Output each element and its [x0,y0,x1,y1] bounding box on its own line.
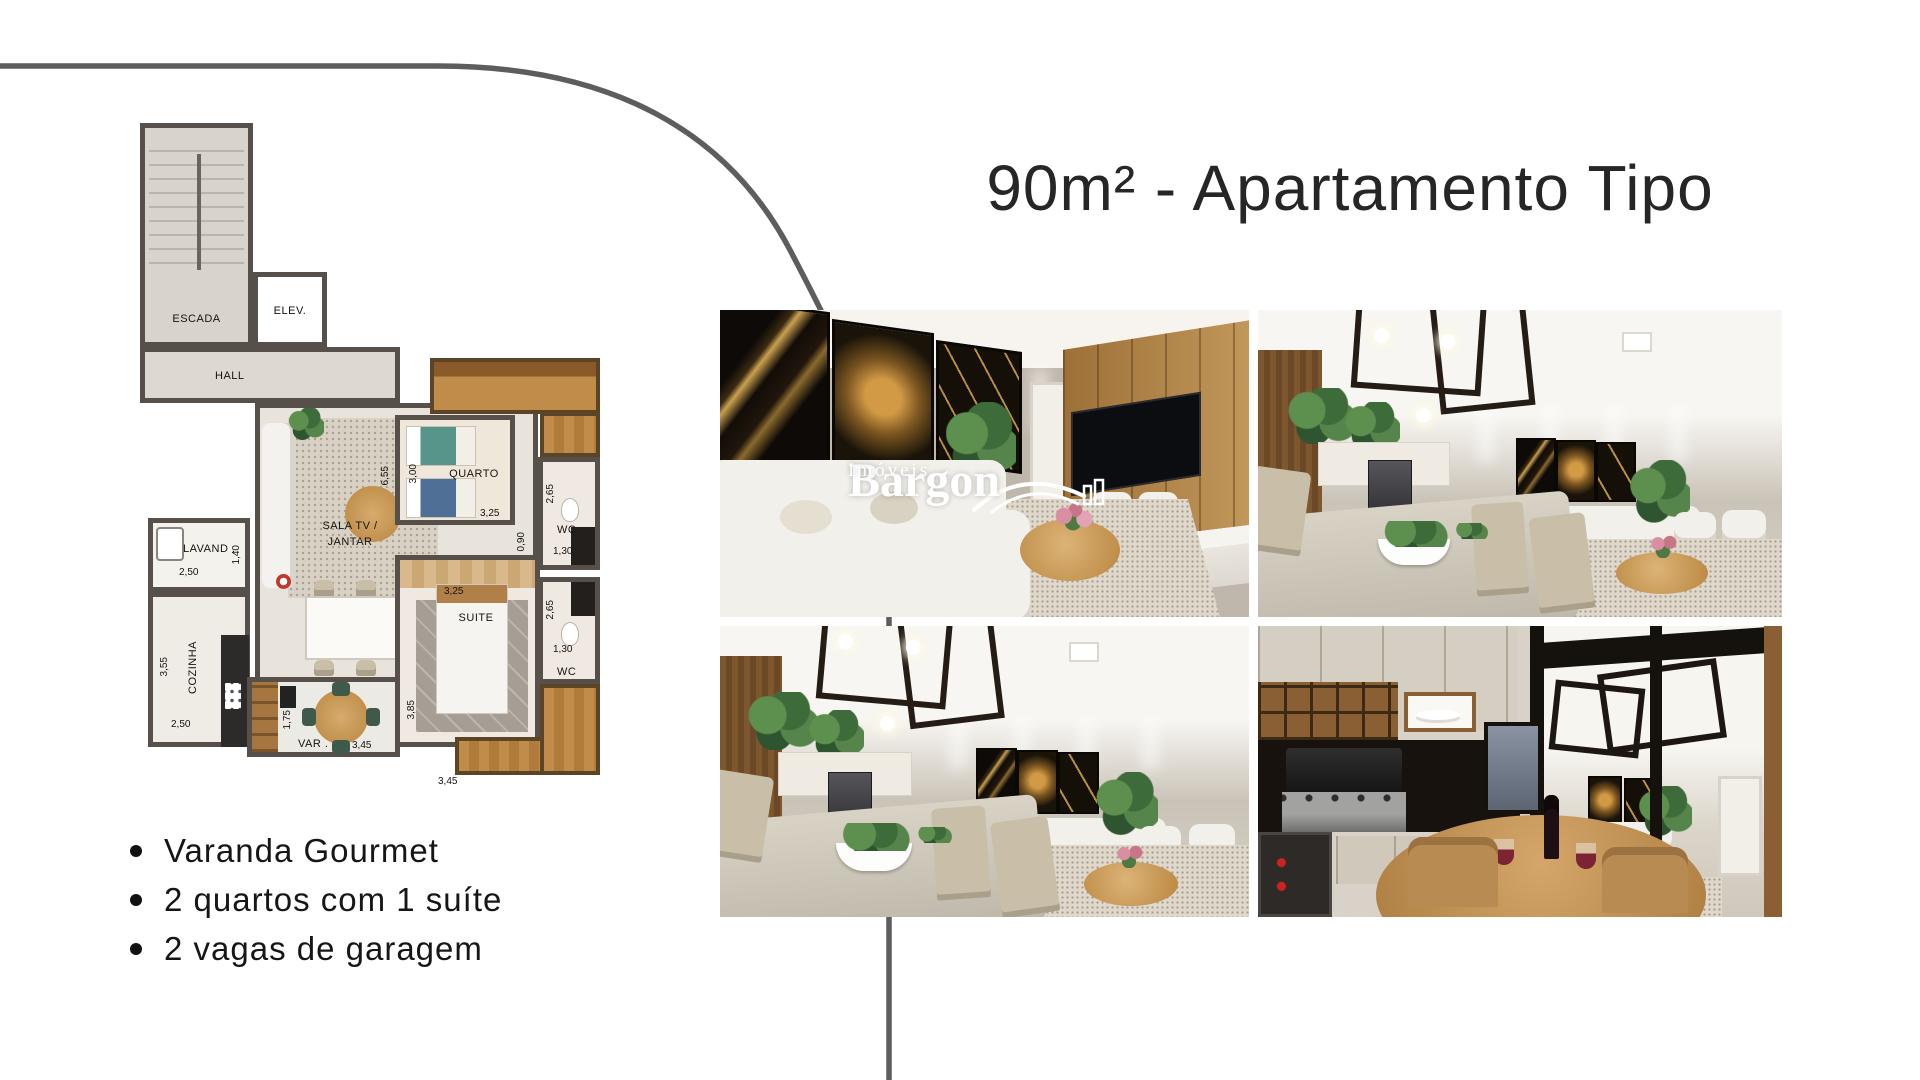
dim-varanda-height: 1,75 [282,710,293,729]
watermark-subtitle: Imóveis [848,460,936,482]
feature-item: Varanda Gourmet [130,826,502,875]
hall-room: HALL [140,347,400,403]
room-label-lavand: LAVAND . [183,543,236,555]
varanda-cabinet [252,682,278,752]
varanda-chair [332,740,350,754]
feature-item: 2 vagas de garagem [130,924,502,973]
floor-plan: ESCADA ELEV. HALL SALA TV / JANTAR 6,55 … [138,118,603,780]
dining-chair-plan [356,660,376,676]
plant-plan [288,408,324,440]
bed-blue-plan [406,478,476,518]
photo-grid: Bargon Imóveis [720,310,1782,917]
oval-coffee-table [1616,552,1708,594]
balcony-deck-top [430,358,600,414]
coffee-table-plan [345,486,401,542]
dim-corridor: 0,90 [516,532,527,551]
salad-greens [916,827,952,843]
plant [1638,786,1692,836]
salad-greens [1380,521,1448,547]
photo-dining-living-alt [720,626,1249,917]
dining-chair-plan [314,580,334,596]
room-label-hall: HALL [215,370,245,382]
room-label-suite: SUITE [436,612,516,624]
salad-greens [1454,523,1488,539]
window-sky [1484,722,1542,814]
washer-icon [156,527,184,561]
feature-label: 2 vagas de garagem [164,930,483,968]
varanda-room: 1,75 VAR . 3,45 [247,677,400,757]
wc-bottom-counter [571,582,595,616]
photo-varanda-gourmet [1258,626,1782,917]
dining-table-plan [305,596,397,660]
ceiling-fixture [1069,642,1099,662]
balcony-deck-right [540,412,600,457]
varanda-grill [280,686,296,708]
wine-glass [1576,843,1596,869]
side-table-plan [276,574,291,589]
varanda-chair [302,708,316,726]
pendant-globe [1416,408,1431,423]
oval-coffee-table [1084,862,1178,906]
pendant-globe [880,716,895,731]
stair-rail [197,154,201,270]
beverage-fridge [1258,832,1332,917]
dim-cozinha-width: 2,50 [171,719,190,730]
dining-chair-plan [356,580,376,596]
wood-edge [1764,626,1782,917]
room-label-escada: ESCADA [145,313,248,325]
sofa-plan [262,423,296,588]
feature-label: Varanda Gourmet [164,832,439,870]
wc-bottom-toilet [561,622,579,646]
grill-hood [1286,748,1402,792]
room-label-varanda: VAR . [298,738,328,750]
stairwell-room: ESCADA [140,123,253,347]
dim-sala-height: 6,55 [380,466,391,485]
elevator-room: ELEV. [253,272,327,347]
door [1718,776,1762,876]
hanging-plant [808,710,864,758]
flower-vase [1112,842,1146,868]
dining-chair [931,805,991,901]
features-list: Varanda Gourmet 2 quartos com 1 suíte 2 … [130,826,502,973]
room-label-cozinha: COZINHA [187,641,199,694]
salad-greens [838,823,910,851]
wc-top-room: 2,65 WC 1,30 [538,457,600,570]
dim-suite-width: 3,25 [444,586,463,597]
sofa-pillow [780,500,832,534]
dim-dining-width: 3,45 [438,776,457,787]
dim-wc-bottom-height: 2,65 [545,600,556,619]
ceiling-geo-frame [1549,679,1646,758]
dim-quarto-length: 3,25 [480,508,499,519]
dim-wc-top-width: 1,30 [553,546,572,557]
varanda-chair [332,682,350,696]
dim-wc-bottom-width: 1,30 [553,644,572,655]
pendant-frame [1427,310,1535,415]
room-label-elev: ELEV. [258,305,322,317]
varanda-chair [366,708,380,726]
dim-wc-top-height: 2,65 [545,484,556,503]
photo-living-room-tv-wall: Bargon Imóveis [720,310,1249,617]
suite-room: 3,25 SUITE 3,85 [395,555,540,747]
wine-bottle [1544,795,1559,859]
bed-teal-plan [406,426,476,466]
lavanderia-room: LAVAND . 2,50 1,40 [148,518,250,592]
quarto-room: QUARTO 3,00 3,25 [395,415,515,525]
room-label-quarto: QUARTO [434,468,514,480]
wall-art-marble [1516,438,1556,500]
feature-item: 2 quartos com 1 suíte [130,875,502,924]
feature-label: 2 quartos com 1 suíte [164,881,502,919]
suite-bed [436,584,508,714]
sofa-seat [720,510,1030,617]
varanda-table [314,690,368,744]
dim-suite-height: 3,85 [406,700,417,719]
dining-chair-plan [314,660,334,676]
pendant-globe [838,634,853,649]
wc-bottom-room: 2,65 1,30 WC [538,577,600,684]
dining-chair [1471,501,1529,596]
room-label-sala-2: JANTAR [290,536,410,548]
stove-plan [225,683,241,709]
flower-vase [1646,532,1680,558]
dim-quarto-width: 3,00 [408,464,419,483]
bullet-icon [130,894,142,906]
bullet-icon [130,845,142,857]
plates [1416,710,1460,720]
room-label-wc-bottom: WC [557,666,576,678]
pendant-globe [1374,328,1389,343]
pendant-globe [906,640,921,655]
cozinha-room: COZINHA 3,55 2,50 [148,592,250,747]
dim-lavand-height: 1,40 [231,545,242,564]
room-label-wc-top: WC [557,524,576,536]
photo-dining-living [1258,310,1782,617]
page-title: 90m² - Apartamento Tipo [880,143,1820,233]
dining-chair [1528,512,1595,614]
deck-bottom-right [540,684,600,775]
grill [1282,792,1406,832]
wood-chair [1408,837,1498,907]
pendant-globe [1440,334,1455,349]
wine-rack [1258,682,1398,740]
dim-varanda-width: 3,45 [352,740,371,751]
slide: ESCADA ELEV. HALL SALA TV / JANTAR 6,55 … [0,0,1920,1080]
wood-chair [1602,847,1688,913]
ceiling-fixture [1622,332,1652,352]
bullet-icon [130,943,142,955]
dim-cozinha-height: 3,55 [159,657,170,676]
wc-top-toilet [561,498,579,522]
room-label-sala-1: SALA TV / [290,520,410,532]
wall-art-geometric [1058,752,1099,814]
dim-lavand-width: 2,50 [179,567,198,578]
